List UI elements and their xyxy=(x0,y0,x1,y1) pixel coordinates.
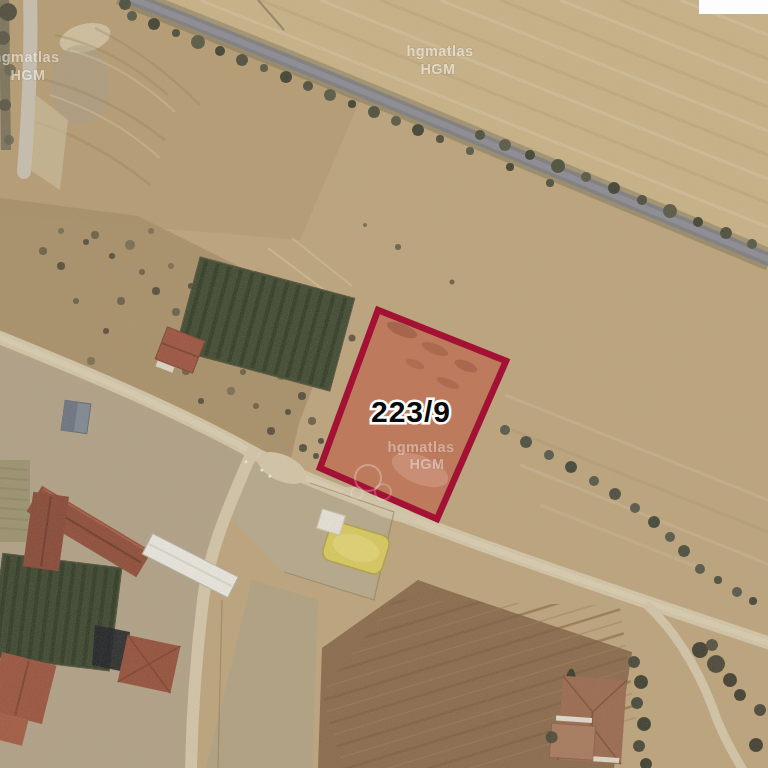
corner-white-box xyxy=(699,0,768,14)
parcel-label: 223/9 xyxy=(371,395,451,428)
watermark-text: hgmatlas xyxy=(407,43,474,59)
satellite-map-view[interactable]: 223/9 hgmatlas HGM hgmatlas HGM hgmatlas… xyxy=(0,0,768,768)
watermark-text: hgmatlas xyxy=(0,49,59,65)
watermark-text: HGM xyxy=(10,67,45,83)
watermark-text: HGM xyxy=(420,61,455,77)
watermark-text: HGM xyxy=(409,456,444,472)
satellite-image: 223/9 hgmatlas HGM hgmatlas HGM hgmatlas… xyxy=(0,0,768,768)
watermark-text: hgmatlas xyxy=(388,439,455,455)
